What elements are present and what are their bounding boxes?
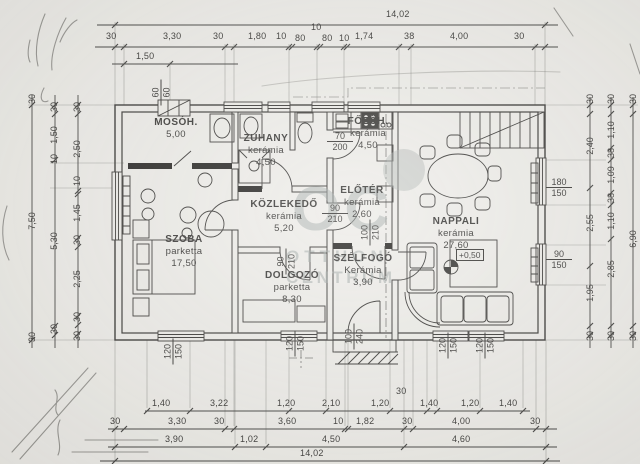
room-material: kerámia [234, 145, 298, 157]
dim-label: 2,55 [585, 205, 595, 241]
pencil-slash-top-right [554, 8, 640, 74]
room-name: MOSÓH. [144, 117, 208, 129]
dim-label: 3,22 [210, 398, 228, 408]
mosoh-door-leaf [174, 151, 191, 166]
window-left [112, 172, 122, 240]
nappali-door [398, 252, 426, 280]
dim-label: 38 [404, 31, 414, 41]
dim-label: 10 [333, 416, 343, 426]
room-name: SZÉLFOGÓ [331, 253, 395, 265]
dim-label: 4,00 [450, 31, 468, 41]
dim-label: 30 [530, 416, 540, 426]
dim-label: 30 [72, 222, 82, 258]
room-name: NAPPALI [424, 216, 488, 228]
floor-plan-scan: OC OTTHON CENTRUM MOSÓH. 5,00 ZUHANY ker… [0, 0, 640, 464]
opening-size-tag-window-szoba: 120 150 [163, 339, 184, 365]
level-mark-label: +0,50 [456, 249, 484, 261]
dim-label: 30 [213, 31, 223, 41]
room-label-szelfogo: SZÉLFOGÓ Kerámia 3,90 [331, 253, 395, 289]
dim-total-bottom: 14,02 [300, 448, 324, 458]
dim-label: 30 [110, 416, 120, 426]
dining-table [420, 135, 501, 216]
dim-label: 1,20 [371, 398, 389, 408]
dim-label: 1,40 [499, 398, 517, 408]
opening-size-tag-window-right-lower: 90 150 [546, 249, 572, 270]
room-material: kerámia [244, 211, 324, 223]
opening-size-tag-kitchen-door: 70 200 [327, 131, 353, 152]
pencil-curve-left-edge [3, 206, 9, 260]
dim-label: 2,85 [606, 251, 616, 287]
toilet [297, 113, 313, 143]
dim-label: 4,50 [322, 434, 340, 444]
opening-size-tag-window-dolgozo: 120 150 [285, 331, 306, 357]
dim-label: 2,50 [72, 131, 82, 167]
room-area: 5,00 [144, 129, 208, 141]
room-material: kerámia [424, 228, 488, 240]
laundry-equipment [141, 173, 224, 238]
level-marker [444, 260, 458, 274]
window-right-lower [536, 244, 546, 285]
dim-label: 30 [606, 318, 616, 354]
window-top-3 [312, 102, 344, 112]
room-name: ZUHANY [234, 133, 298, 145]
dim-label: 10 [49, 141, 59, 177]
dim-label: 80 [295, 33, 305, 43]
opening-size-tag-window-nappali-b: 120 150 [475, 333, 496, 359]
room-label-szoba: SZOBA parketta 17,50 [152, 234, 216, 270]
dim-label: 1,20 [277, 398, 295, 408]
dim-label: 1,20 [461, 398, 479, 408]
dim-label: 1,80 [248, 31, 266, 41]
room-name: SZOBA [152, 234, 216, 246]
dim-label: 30 [396, 386, 406, 396]
opening-size-tag-entry-door: 100 240 [344, 324, 365, 350]
dim-label: 1,40 [152, 398, 170, 408]
dim-label: 30 [628, 81, 638, 117]
dim-label: 30 [72, 89, 82, 125]
window-right-upper [536, 158, 546, 205]
window-top-4 [348, 102, 380, 112]
dim-label: 2,25 [72, 261, 82, 297]
dim-label: 1,02 [240, 434, 258, 444]
dim-label: 1,10 [606, 203, 616, 239]
room-name: KÖZLEKEDŐ [244, 199, 324, 211]
dim-label: 2,40 [585, 128, 595, 164]
room-material: Kerámia [331, 265, 395, 277]
dim-label: 30 [585, 318, 595, 354]
dim-total-left: 7,50 [27, 203, 37, 239]
dim-total-top: 14,02 [386, 9, 410, 19]
dim-label: 1,95 [585, 275, 595, 311]
room-area: 5,20 [244, 223, 324, 235]
dim-label: 3,60 [278, 416, 296, 426]
opening-size-tag-window-nappali-a: 120 150 [438, 333, 459, 359]
dim-label: 30 [628, 318, 638, 354]
pencil-diagonals-bottom-left [12, 368, 158, 459]
room-area: 17,50 [152, 258, 216, 270]
dim-label: 30 [49, 311, 59, 347]
window-top-1 [224, 102, 262, 112]
dim-label: 1,40 [420, 398, 438, 408]
dim-label: 3,30 [168, 416, 186, 426]
dim-label: 4,60 [452, 434, 470, 444]
room-label-kozlekedo: KÖZLEKEDŐ kerámia 5,20 [244, 199, 324, 235]
armchair [405, 243, 440, 327]
room-name: FŐZŐH. [336, 116, 400, 128]
opening-size-tag-szelfogo-door: 100 210 [360, 220, 381, 246]
opening-size-tag-window-right-upper: 180 150 [546, 177, 572, 198]
opening-size-tag-chimney: 60 60 [151, 80, 172, 106]
dim-label: 30 [106, 31, 116, 41]
opening-size-tag-eloter-door: 90 210 [322, 203, 348, 224]
dim-total-right: 6,90 [628, 221, 638, 257]
roof-overhang-line [293, 88, 545, 97]
dim-label: 4,00 [452, 416, 470, 426]
dim-label: 1,74 [355, 31, 373, 41]
dim-label: 10 [311, 22, 321, 32]
room-material: parketta [152, 246, 216, 258]
dim-label: 30 [27, 319, 37, 355]
dim-label: 3,90 [165, 434, 183, 444]
mosoh-sink [210, 114, 234, 142]
stairs [460, 112, 544, 148]
dim-label: 1,50 [136, 51, 154, 61]
sofa [437, 292, 513, 325]
room-label-zuhany: ZUHANY kerámia 4,50 [234, 133, 298, 169]
dim-label: 30 [585, 81, 595, 117]
dim-label: 30 [514, 31, 524, 41]
dim-label: 3,30 [163, 31, 181, 41]
window-top-2 [268, 102, 290, 112]
room-label-dolgozo: DOLGOZÓ parketta 8,30 [260, 270, 324, 306]
dim-label: 5,30 [49, 223, 59, 259]
dim-label: 80 [322, 33, 332, 43]
room-material: parketta [260, 282, 324, 294]
dim-label: 30 [72, 318, 82, 354]
dim-label: 30 [27, 81, 37, 117]
room-name: ELŐTÉR [330, 185, 394, 197]
room-area: 8,30 [260, 294, 324, 306]
dim-label: 10 [276, 31, 286, 41]
dim-label: 30 [402, 416, 412, 426]
room-label-mosoh: MOSÓH. 5,00 [144, 117, 208, 141]
opening-size-tag-dolgozo-door: 90 210 [276, 249, 297, 275]
dim-label: 1,82 [356, 416, 374, 426]
room-area: 3,90 [331, 277, 395, 289]
dim-label: 2,10 [322, 398, 340, 408]
dim-label: 10 [339, 33, 349, 43]
dim-label: 10 [72, 163, 82, 199]
dim-label: 30 [214, 416, 224, 426]
room-area: 4,50 [234, 157, 298, 169]
room-label-nappali: NAPPALI kerámia 27,60 [424, 216, 488, 252]
